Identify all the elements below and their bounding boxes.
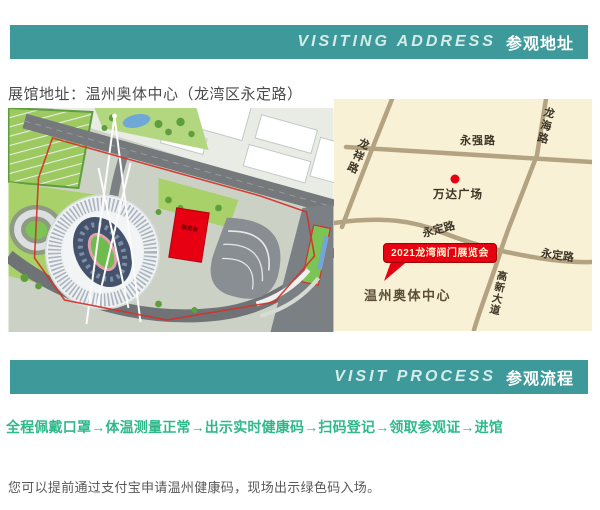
page: VISITING ADDRESS 参观地址 展馆地址：温州奥体中心（龙湾区永定路… xyxy=(0,0,600,510)
banner-english-title: VISIT PROCESS xyxy=(334,368,496,386)
visiting-address-banner: VISITING ADDRESS 参观地址 xyxy=(10,25,588,59)
site-plan-image: 展览会 xyxy=(8,108,334,332)
exhibition-location-badge: 2021龙湾阀门展览会 xyxy=(383,243,497,263)
banner-english-title: VISITING ADDRESS xyxy=(297,33,496,51)
poi-label-wanda-plaza: 万达广场 xyxy=(433,186,483,202)
site-plan-graphic: 展览会 xyxy=(8,108,334,332)
banner-chinese-title: 参观流程 xyxy=(506,365,574,389)
venue-label-olympic-center: 温州奥体中心 xyxy=(364,285,451,304)
visit-process-banner: VISIT PROCESS 参观流程 xyxy=(10,360,588,394)
venue-address-text: 展馆地址：温州奥体中心（龙湾区永定路） xyxy=(8,83,303,104)
location-map: 永强路 龙海路 龙祥路 高新大道 永定路 永定路 万达广场 2021龙湾阀门展览… xyxy=(334,99,592,331)
wanda-plaza-dot xyxy=(451,175,460,184)
banner-chinese-title: 参观地址 xyxy=(506,30,574,54)
visit-process-steps: 全程佩戴口罩→体温测量正常→出示实时健康码→扫码登记→领取参观证→进馆 xyxy=(6,417,598,437)
health-code-note: 您可以提前通过支付宝申请温州健康码，现场出示绿色码入场。 xyxy=(8,477,380,496)
road-label-yongqiang: 永强路 xyxy=(460,132,496,148)
